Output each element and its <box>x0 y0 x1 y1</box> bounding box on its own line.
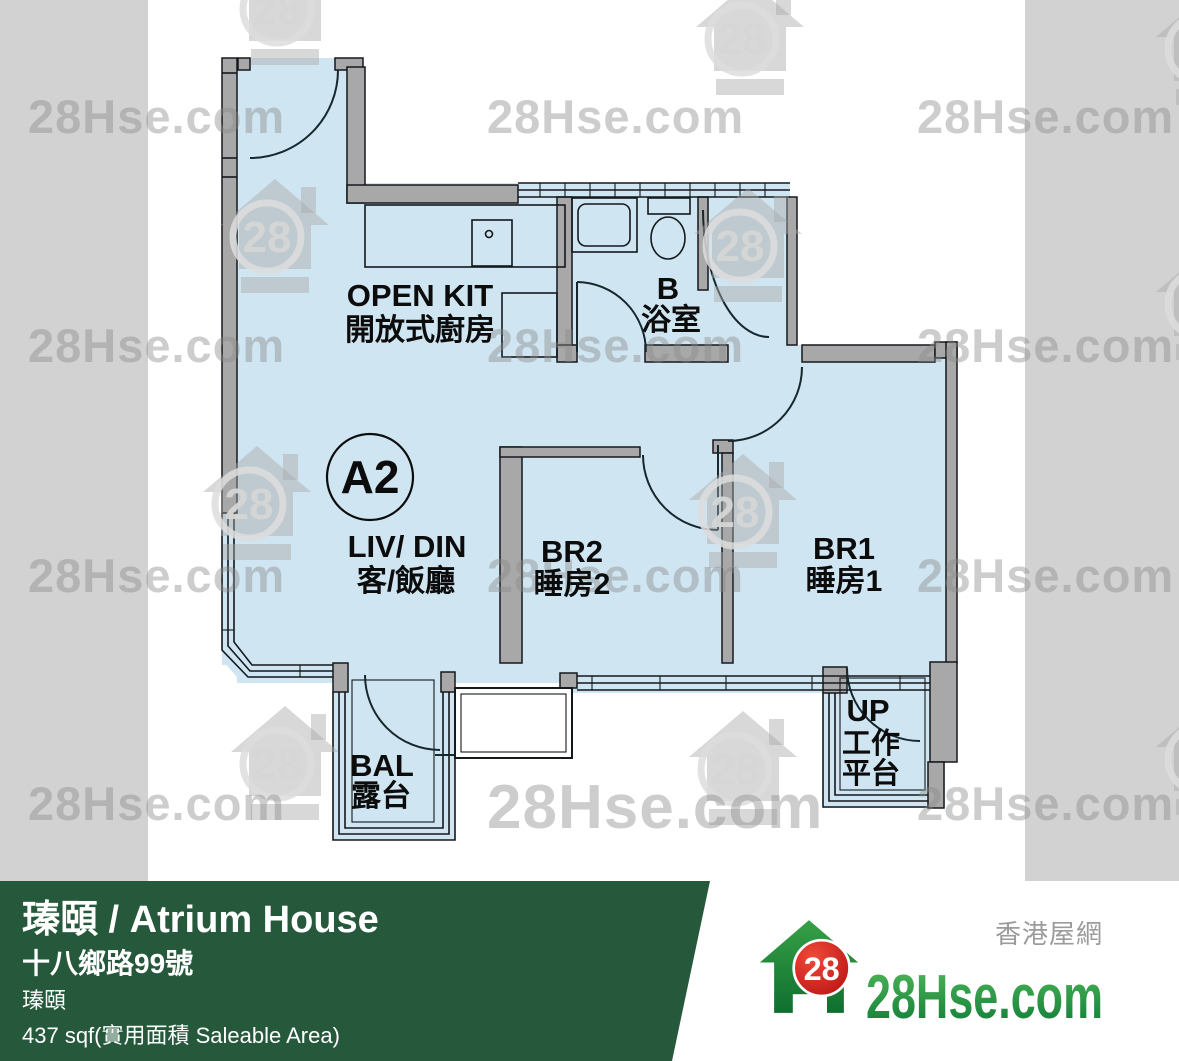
watermark-text: 28Hse.com <box>28 777 285 830</box>
logo-brand-text: 28Hse.com <box>866 963 1103 1032</box>
bedroom2-top-wall <box>500 447 640 457</box>
bay-platform <box>455 688 572 758</box>
saleable-area: 437 sqf(實用面積 Saleable Area) <box>22 1023 340 1048</box>
watermark-text: 28Hse.com <box>917 777 1174 830</box>
watermark-text: 28Hse.com <box>917 90 1174 143</box>
logo-badge-number: 28 <box>804 951 840 987</box>
living-label-zh: 客/飯廳 <box>357 564 455 598</box>
bottom-wall-block <box>560 673 577 688</box>
building-address: 十八鄉路99號 <box>22 948 193 979</box>
kitchen-top-wall <box>347 185 518 203</box>
watermark-text: 28Hse.com <box>487 549 744 602</box>
watermark-text: 28Hse.com <box>487 90 744 143</box>
living-label-en: LIV/ DIN <box>348 529 467 564</box>
bedroom2-label-zh: 睡房2 <box>534 568 611 601</box>
site-logo[interactable]: 香港屋網 28 28Hse.com <box>757 919 1103 1032</box>
logo-tagline: 香港屋網 <box>995 919 1103 949</box>
watermark-text: 28Hse.com <box>487 773 823 842</box>
balcony-label-en: BAL <box>350 748 414 783</box>
watermark-text: 28Hse.com <box>917 549 1174 602</box>
bedroom2-label-en: BR2 <box>541 534 603 569</box>
right-outer-wall <box>946 342 957 663</box>
utility-right-block <box>930 662 957 762</box>
entrance-left-jamb <box>238 58 250 70</box>
balcony-left-jamb <box>333 663 348 692</box>
bathroom-label-en: B <box>657 271 679 306</box>
bedroom1-top-wall <box>802 345 935 362</box>
building-title: 瑧頤 / Atrium House <box>22 899 379 941</box>
watermark-text: 28Hse.com <box>28 90 285 143</box>
utility-door-jamb <box>823 667 847 693</box>
bedroom1-label-zh: 睡房1 <box>806 565 883 598</box>
watermark-text: 28Hse.com <box>917 319 1174 372</box>
balcony-right-jamb <box>441 672 455 692</box>
watermark-text: 28Hse.com <box>28 319 285 372</box>
unit-label: A2 <box>341 451 400 503</box>
info-bar: 瑧頤 / Atrium House 十八鄉路99號 瑧頤 437 sqf(實用面… <box>0 881 710 1061</box>
logo-house-icon: 28 <box>757 919 861 1014</box>
watermark-text: 28Hse.com <box>487 319 744 372</box>
utility-label-en: UP <box>846 693 889 728</box>
kitchen-label-en: OPEN KIT <box>347 278 493 313</box>
bedroom1-label-en: BR1 <box>813 531 875 566</box>
bathroom-label-zh: 浴室 <box>641 303 701 337</box>
watermark-text: 28Hse.com <box>28 549 285 602</box>
corridor-right-wall <box>347 67 365 203</box>
floorplan-page: 28 <box>0 0 1179 1061</box>
utility-label-zh2: 平台 <box>842 756 900 790</box>
kitchen-label-zh: 開放式廚房 <box>345 313 495 347</box>
balcony-label-zh: 露台 <box>351 779 411 813</box>
utility-label-zh1: 工作 <box>842 727 900 760</box>
estate-name: 瑧頤 <box>22 988 66 1013</box>
